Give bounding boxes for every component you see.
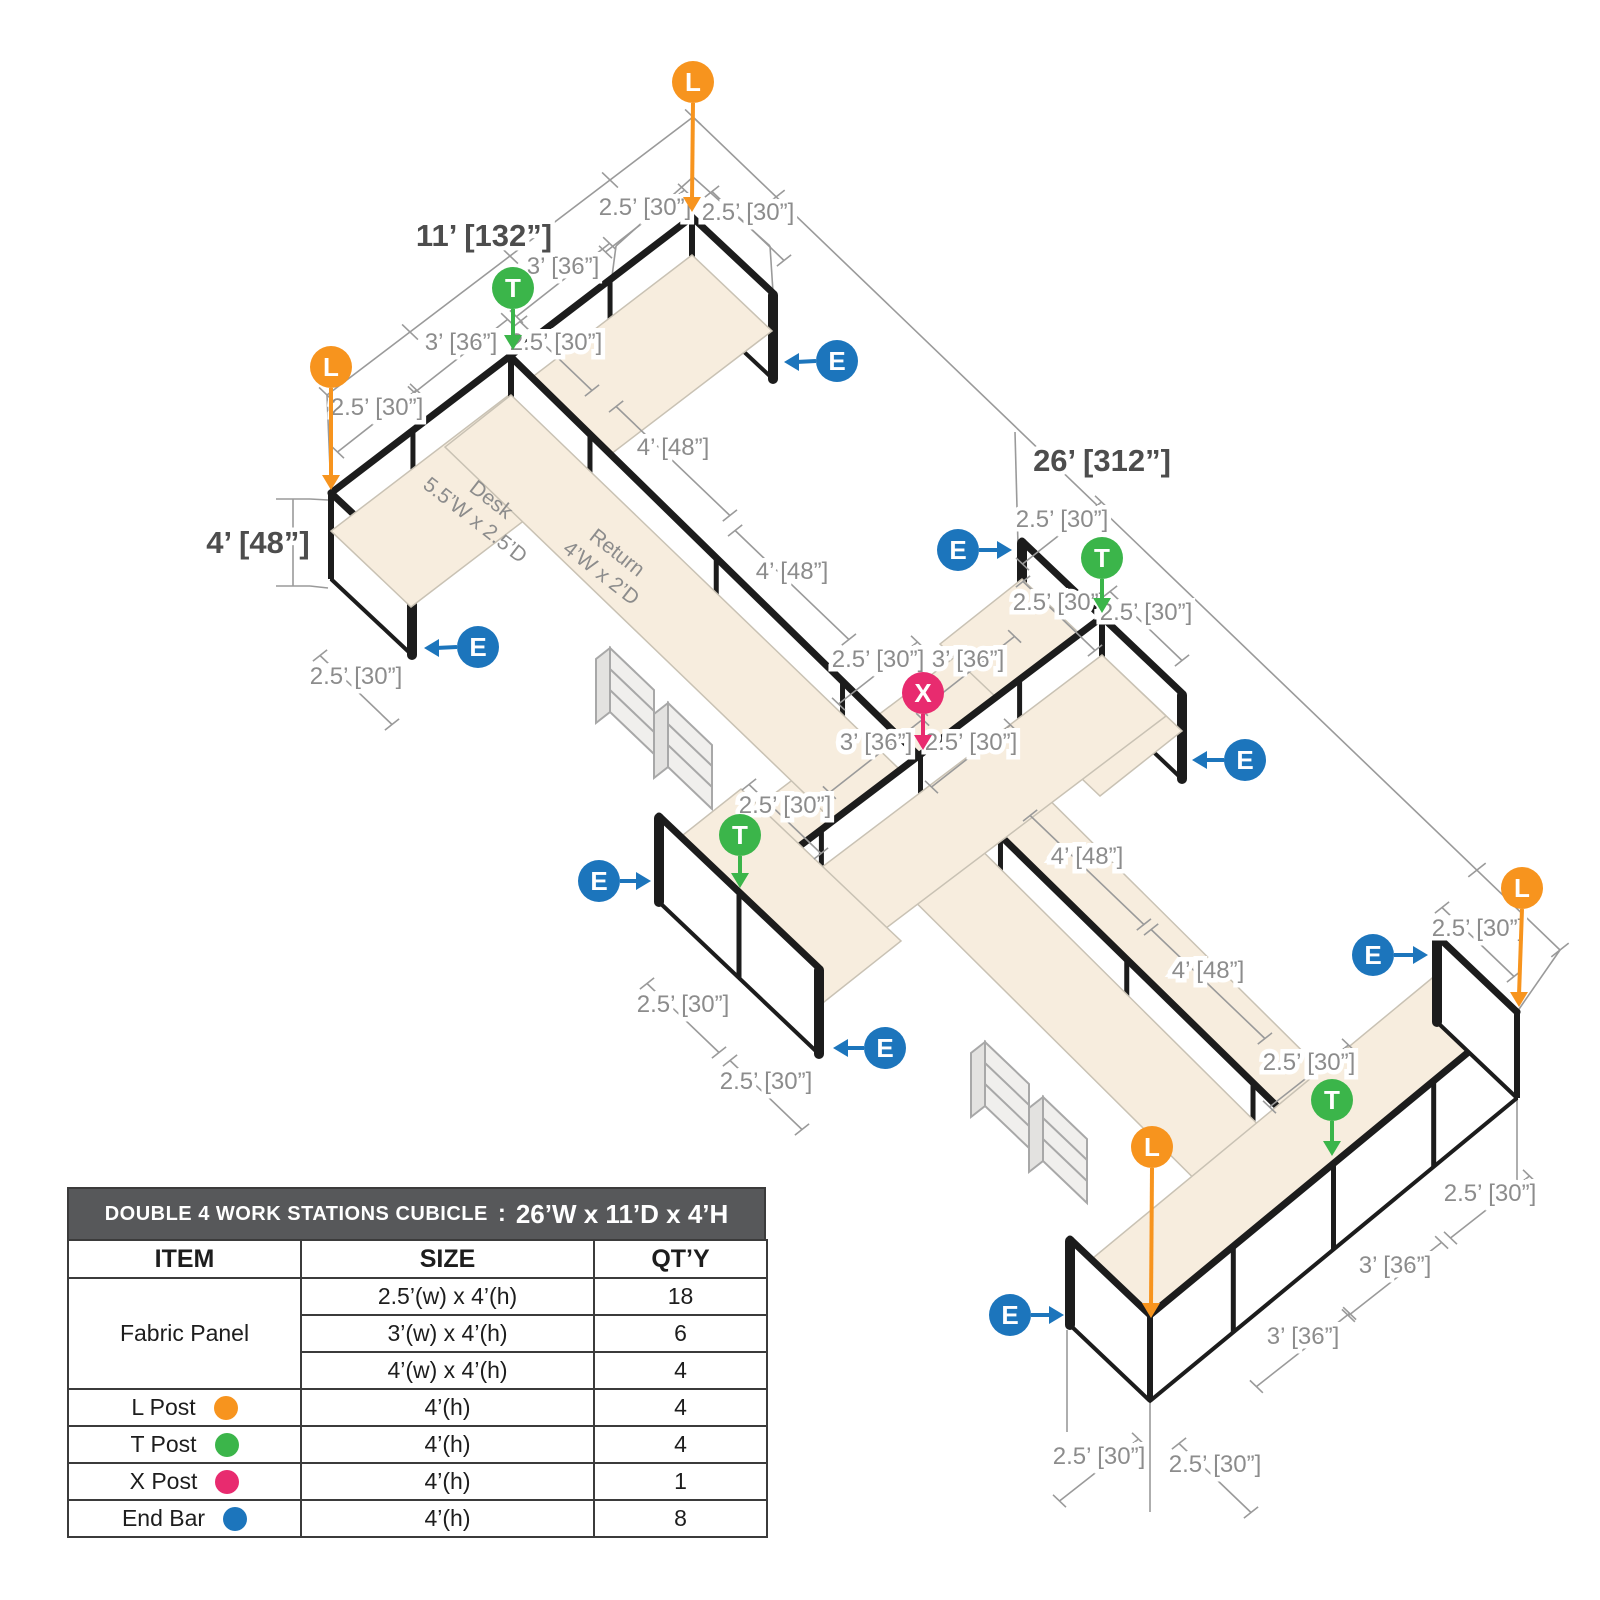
dim-label: 4’ [48”] [1172,957,1244,984]
dim-label: 3’ [36”] [425,329,497,356]
l-post-qty: 4 [594,1389,767,1426]
marker-letter: L [1144,1132,1160,1162]
end-bar-marker: E [1352,934,1428,976]
marker-arrow-head [1192,751,1207,769]
marker-arrow-head [833,1039,848,1057]
bold-dim-label: 4’ [48”] [206,525,309,560]
guide-tick [402,324,418,339]
marker-letter: E [949,535,966,565]
t-post-size: 4’(h) [301,1426,594,1463]
marker-arrow-shaft [436,647,457,648]
fabric-size-3: 4’(w) x 4’(h) [301,1352,594,1389]
table-row: L Post 4’(h) 4 [68,1389,767,1426]
pedestal-front [668,703,712,809]
marker-letter: E [1236,745,1253,775]
dim-label: 2.5’ [30”] [925,729,1018,756]
marker-letter: T [732,820,748,850]
end-bar-marker: E [989,1294,1064,1336]
marker-arrow-head [1413,946,1428,964]
marker-arrow-head [1049,1306,1064,1324]
diagram-page: Desk5.5’W x 2.5’DReturn4’W x 2’D2.5’ [30… [0,0,1600,1600]
table-row: End Bar 4’(h) 8 [68,1500,767,1537]
dim-label: 2.5’ [30”] [1016,506,1109,533]
t-post-qty: 4 [594,1426,767,1463]
dim-label: 2.5’ [30”] [1053,1443,1146,1470]
marker-letter: E [1364,940,1381,970]
dim-label: 2.5’ [30”] [637,991,730,1018]
marker-letter: L [1514,873,1530,903]
fabric-panel-label: Fabric Panel [68,1278,301,1389]
x-post-size: 4’(h) [301,1463,594,1500]
marker-arrow-head [636,872,651,890]
dim-label: 3’ [36”] [932,646,1004,673]
fabric-size-2: 3’(w) x 4’(h) [301,1315,594,1352]
l-post-size: 4’(h) [301,1389,594,1426]
marker-letter: L [323,352,339,382]
dim-label: 3’ [36”] [840,729,912,756]
pedestal-side [971,1042,985,1117]
dim-label: 2.5’ [30”] [510,329,603,356]
t-post-label: T Post [130,1431,196,1458]
fabric-qty-1: 18 [594,1278,767,1315]
l-post-label: L Post [131,1394,195,1421]
end-bar-marker: E [1192,739,1266,781]
x-post-label: X Post [130,1468,198,1495]
guide-line [310,499,328,500]
end-bar-marker: E [937,529,1012,571]
x-post-dot [215,1470,239,1494]
t-post-dot [215,1433,239,1457]
pedestal-front [985,1042,1029,1148]
marker-letter: T [1324,1085,1340,1115]
pedestal-front [1043,1097,1087,1203]
guide-tick [602,172,618,187]
x-post-qty: 1 [594,1463,767,1500]
dim-label: 4’ [48”] [637,434,709,461]
dim-label: 3’ [36”] [527,253,599,280]
marker-arrow-head [997,541,1012,559]
bold-dim-label: 26’ [312”] [1033,443,1171,478]
spec-table: DOUBLE 4 WORK STATIONS CUBICLE : 26’W x … [67,1187,766,1538]
end-bar-marker: E [424,626,499,668]
dim-label: 2.5’ [30”] [1263,1049,1356,1076]
marker-letter: T [1094,543,1110,573]
fabric-qty-2: 6 [594,1315,767,1352]
marker-letter: E [590,866,607,896]
pedestal-front [610,648,654,754]
dim-label: 2.5’ [30”] [331,394,424,421]
bold-dim-label: 11’ [132”] [416,218,552,253]
end-bar-dot [223,1507,247,1531]
spec-title-dims: 26’W x 11’D x 4’H [516,1199,728,1230]
guide-line [1517,950,1560,1012]
dim-label: 2.5’ [30”] [1444,1180,1537,1207]
dim-label: 2.5’ [30”] [739,792,832,819]
spec-columns-row: ITEM SIZE QT’Y [68,1240,767,1278]
marker-letter: E [469,632,486,662]
end-bar-qty: 8 [594,1500,767,1537]
pedestal-side [1029,1097,1043,1172]
end-bar-label: End Bar [122,1505,205,1532]
marker-letter: X [914,678,932,708]
table-row: T Post 4’(h) 4 [68,1426,767,1463]
dim-label: 2.5’ [30”] [1169,1451,1262,1478]
end-bar-size: 4’(h) [301,1500,594,1537]
dim-label: 4’ [48”] [1051,843,1123,870]
end-bar-marker: E [833,1027,906,1069]
col-item: ITEM [68,1240,301,1278]
marker-letter: L [685,67,701,97]
dim-label: 3’ [36”] [1267,1323,1339,1350]
dim-label: 3’ [36”] [1359,1252,1431,1279]
marker-letter: E [876,1033,893,1063]
col-qty: QT’Y [594,1240,767,1278]
spec-table-header: DOUBLE 4 WORK STATIONS CUBICLE : 26’W x … [67,1187,766,1239]
end-bar-marker: E [578,860,651,902]
marker-arrow-head [424,639,439,657]
fabric-qty-3: 4 [594,1352,767,1389]
dim-label: 2.5’ [30”] [1013,589,1106,616]
dim-label: 2.5’ [30”] [720,1068,813,1095]
marker-letter: E [828,346,845,376]
guide-line [310,586,328,588]
spec-title-colon: : [498,1200,506,1228]
l-post-dot [214,1396,238,1420]
spec-table-grid: ITEM SIZE QT’Y Fabric Panel 2.5’(w) x 4’… [67,1239,768,1538]
marker-arrow-head [784,353,799,371]
table-row: X Post 4’(h) 1 [68,1463,767,1500]
table-row: Fabric Panel 2.5’(w) x 4’(h) 18 [68,1278,767,1315]
marker-letter: T [505,273,521,303]
col-size: SIZE [301,1240,594,1278]
dim-label: 2.5’ [30”] [310,663,403,690]
marker-arrow-shaft [692,103,693,200]
fabric-size-1: 2.5’(w) x 4’(h) [301,1278,594,1315]
pedestal-side [596,648,610,723]
dim-label: 2.5’ [30”] [599,194,692,221]
dim-label: 2.5’ [30”] [832,646,925,673]
spec-title-text: DOUBLE 4 WORK STATIONS CUBICLE [105,1203,488,1226]
marker-letter: E [1001,1300,1018,1330]
dim-label: 4’ [48”] [756,558,828,585]
dim-label: 2.5’ [30”] [1432,915,1525,942]
marker-arrow-shaft [1151,1168,1152,1306]
end-bar-marker: E [784,340,858,382]
dim-label: 2.5’ [30”] [1100,599,1193,626]
pedestal-side [654,703,668,778]
dim-label: 2.5’ [30”] [702,199,795,226]
guide-line [770,246,773,292]
pedestal-cabinet-2 [971,1042,1087,1203]
